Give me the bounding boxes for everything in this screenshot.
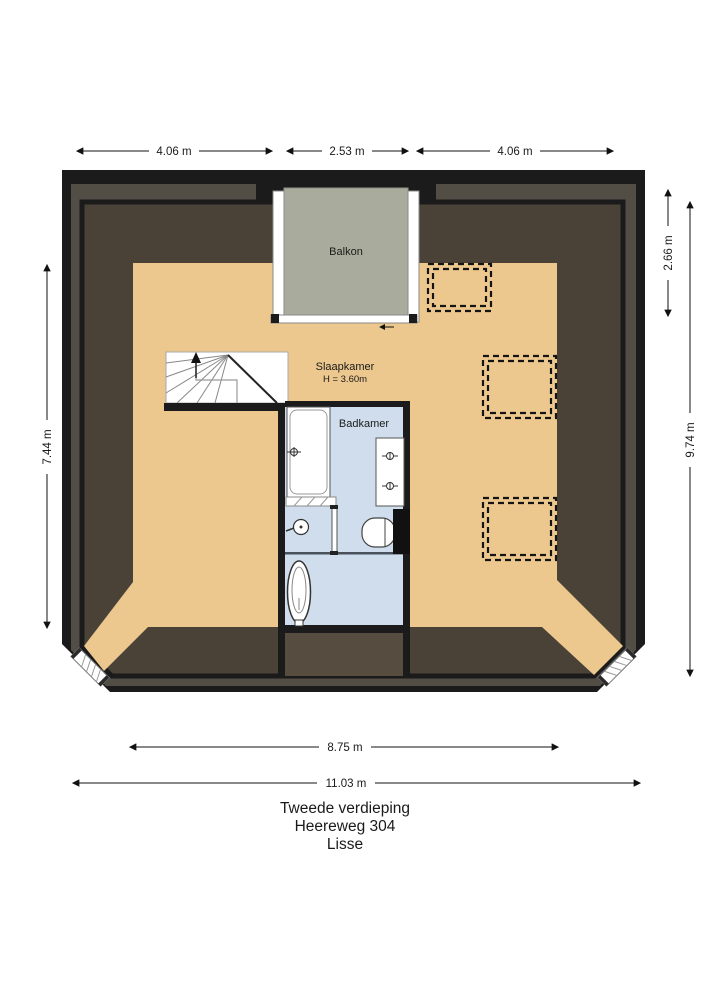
bathtub — [287, 407, 330, 497]
dim-bottom-total-label: 11.03 m — [326, 778, 367, 790]
title-street: Heereweg 304 — [295, 818, 396, 835]
shower-door — [332, 508, 337, 552]
title-city: Lisse — [327, 836, 363, 853]
balcony-post-left — [271, 314, 279, 323]
balcony: Balkon — [256, 170, 436, 327]
dim-top-center-label: 2.53 m — [329, 146, 364, 158]
bedroom-height-note: H = 3.60m — [323, 374, 367, 385]
balcony-rail-right — [408, 191, 419, 322]
dim-top-right-label: 4.06 m — [497, 146, 532, 158]
staircase — [164, 352, 291, 411]
dim-right-balcony-label: 2.66 m — [663, 235, 675, 270]
dim-bottom-inner-label: 8.75 m — [327, 742, 362, 754]
vanity — [376, 438, 404, 506]
dim-left-height-label: 7.44 m — [42, 429, 54, 464]
toilet-cistern — [393, 509, 410, 554]
bathroom-label: Badkamer — [339, 418, 389, 430]
shower-ledge — [286, 497, 336, 506]
center-void — [285, 632, 403, 676]
balcony-label: Balkon — [329, 246, 363, 258]
floor-plan-page: Balkon — [0, 0, 707, 1000]
stair-bottom-wall — [164, 403, 291, 411]
balcony-post-right — [409, 314, 417, 323]
dim-right-total-label: 9.74 m — [685, 422, 697, 457]
bathroom-divider — [285, 552, 403, 555]
bathroom-wall-top — [285, 401, 410, 407]
floor-plan-svg: Balkon — [0, 0, 707, 1000]
bedroom-label: Slaapkamer — [316, 361, 375, 373]
bathroom-wall-left — [278, 403, 285, 677]
title-floor: Tweede verdieping — [280, 800, 410, 817]
balcony-rail-bottom — [271, 315, 417, 323]
balcony-rail-left — [273, 191, 284, 322]
dim-top-left-label: 4.06 m — [156, 146, 191, 158]
